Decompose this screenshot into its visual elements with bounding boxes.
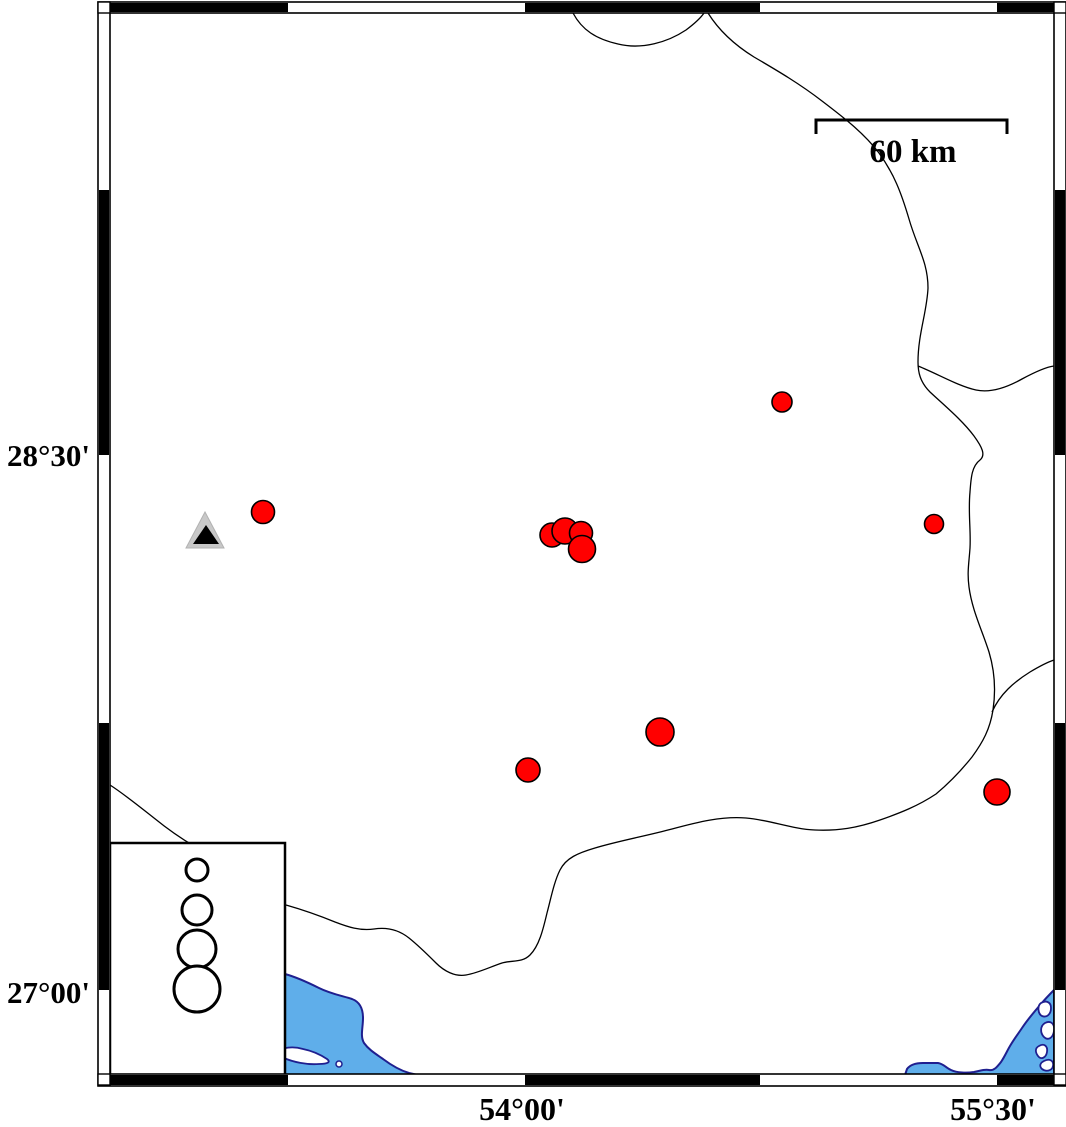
frame-segment-top [997,3,1054,12]
island [1041,1022,1054,1039]
frame-corner [98,1074,110,1085]
island [1038,1002,1051,1017]
frame-segment-top [525,3,760,12]
frame-corner [1054,1074,1066,1085]
legend-magnitude-circle [178,930,216,968]
legend-magnitude-circle [182,895,212,925]
island [1036,1045,1047,1058]
epicenter-marker [252,501,275,524]
frame-segment-right [1055,190,1065,455]
latitude-label: 27°00' [7,975,90,1010]
frame-corner [98,2,110,13]
map-svg: 60 km 28°30'27°00'54°00'55°30' [0,0,1066,1127]
frame-segment-bottom [997,1075,1054,1085]
legend-layer [110,843,285,1075]
epicenter-marker [516,758,540,782]
frame-corner [1054,2,1066,13]
epicenter-marker [772,392,792,412]
island [1040,1060,1053,1071]
longitude-label: 55°30' [950,1091,1036,1127]
islet [336,1061,342,1067]
scale-bar-label: 60 km [869,134,956,170]
map-canvas: 60 km 28°30'27°00'54°00'55°30' [0,0,1066,1127]
latitude-label: 28°30' [7,438,90,473]
longitude-label: 54°00' [479,1091,565,1127]
legend-magnitude-circle [174,966,220,1012]
frame-segment-bottom [110,1075,288,1085]
epicenter-marker [569,536,596,563]
frame-segment-top [110,3,288,12]
legend-magnitude-circle [186,859,208,881]
epicenter-marker [646,718,674,746]
frame-segment-left [99,190,109,455]
epicenter-marker [925,515,944,534]
frame-segment-right [1055,723,1065,990]
frame-segment-left [99,723,109,990]
frame-segment-bottom [525,1075,760,1085]
epicenter-marker [984,779,1010,805]
